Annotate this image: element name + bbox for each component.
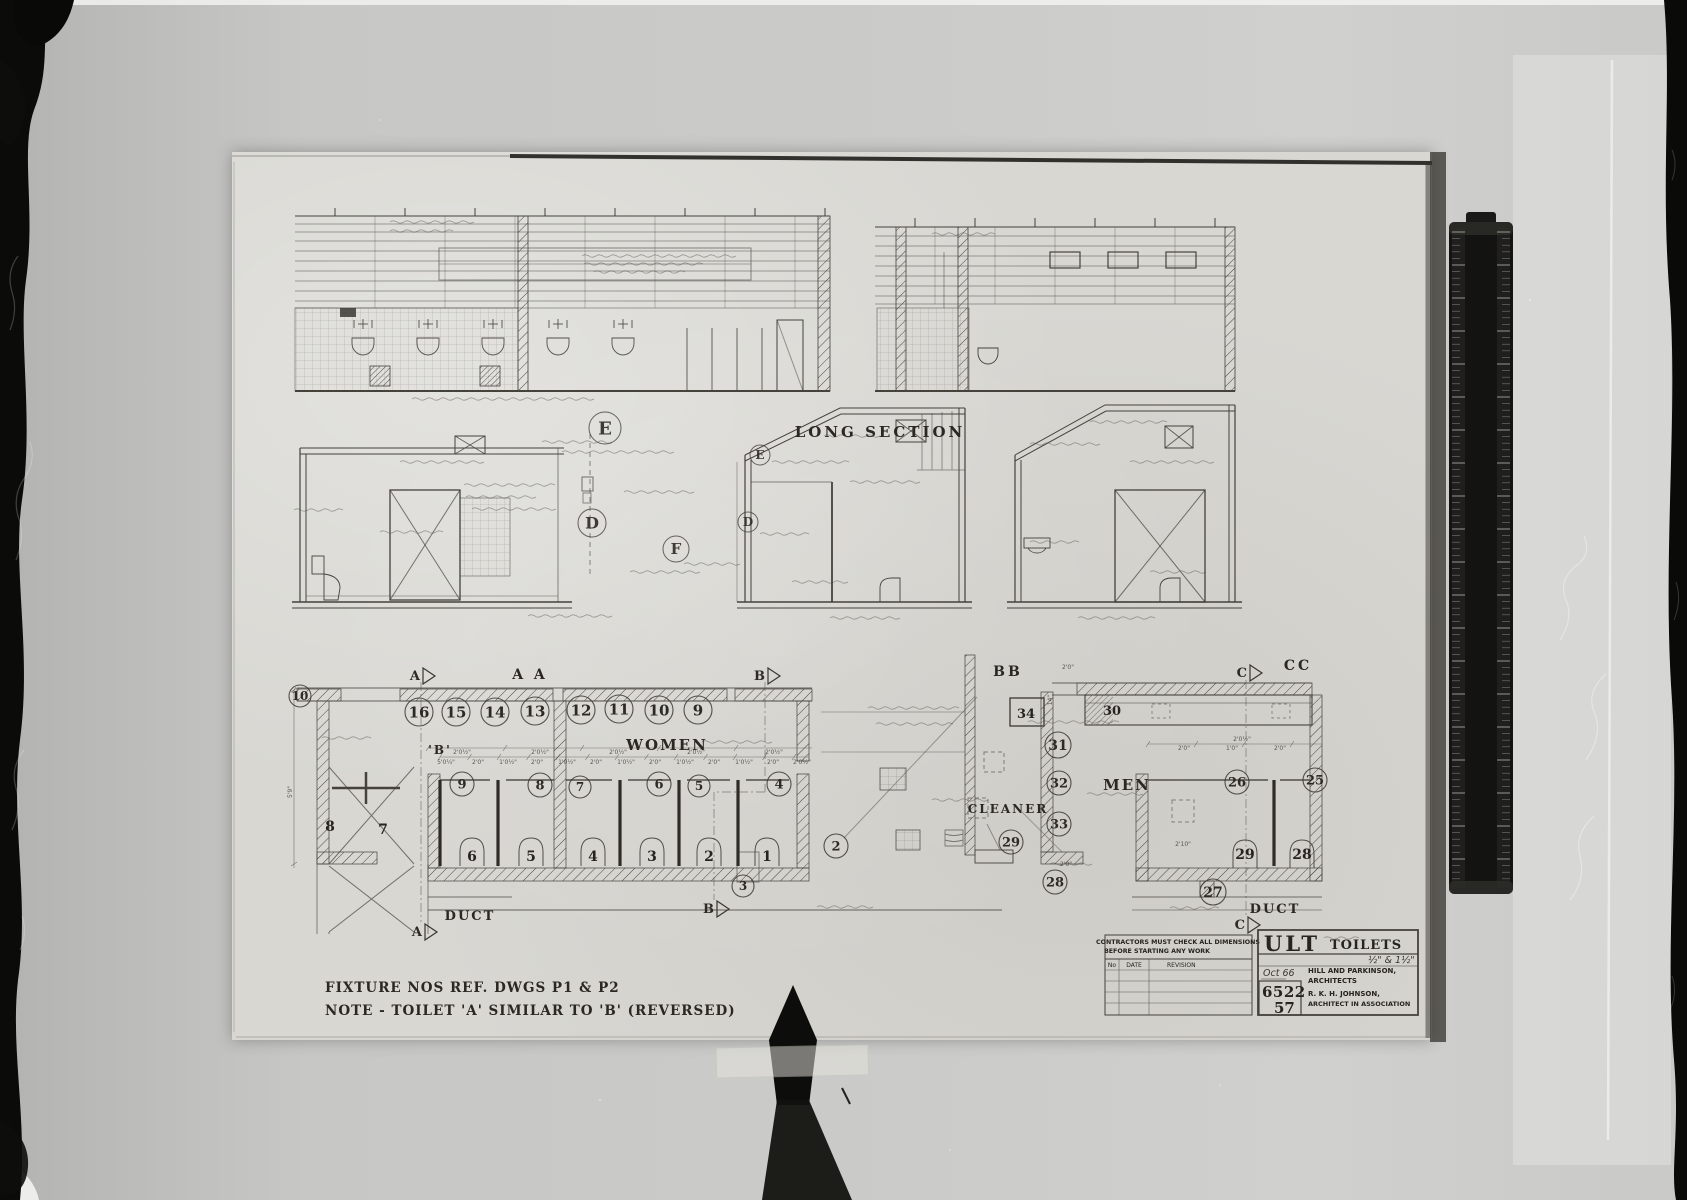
pen-tick-mark: [842, 1088, 850, 1104]
fixture-circle: 31: [1045, 732, 1071, 758]
stall-number: 4: [588, 849, 598, 865]
fixture-circle: 14: [481, 698, 509, 726]
dimension-label: 2'0": [1178, 745, 1190, 752]
fixture-circle: 5: [688, 775, 710, 797]
fixture-circle: 8: [528, 773, 552, 797]
svg-text:D: D: [585, 514, 599, 533]
sheet-edge-gap-shadow: [1430, 152, 1446, 1042]
cleaner-label: CLEANER: [968, 802, 1049, 816]
handwriting-scratches-left: [10, 256, 32, 950]
handwritten-note: [868, 707, 959, 709]
toilet-b-label: 'B': [428, 743, 452, 757]
svg-text:D: D: [743, 515, 753, 529]
detail-marker: E: [589, 412, 621, 444]
rev-revision-header: REVISION: [1167, 962, 1196, 969]
handwritten-note: [850, 481, 920, 483]
handwritten-note: [830, 617, 900, 619]
svg-text:16: 16: [409, 703, 430, 721]
handwritten-note: [792, 581, 848, 583]
rev-date-header: DATE: [1126, 962, 1142, 969]
firm-line3: R. K. H. JOHNSON,: [1308, 990, 1380, 998]
fixture-circle: 10: [289, 685, 311, 707]
stall-number: 2: [704, 849, 714, 865]
fixture-circle: 32: [1047, 771, 1071, 795]
duct-right-label: DUCT: [1250, 902, 1301, 917]
note-line2: NOTE - TOILET 'A' SIMILAR TO 'B' (REVERS…: [325, 1003, 736, 1019]
handwritten-note: [684, 563, 740, 565]
film-blob-topleft: [14, 0, 74, 45]
handwritten-note: [542, 441, 612, 443]
svg-text:C: C: [1237, 666, 1247, 681]
project-code: ULT: [1264, 931, 1320, 956]
ruler-graduations: [1452, 232, 1510, 879]
section-marker: A: [411, 924, 437, 940]
handwritten-note: [876, 723, 953, 725]
handwritten-note: [1090, 421, 1167, 423]
fixture-circle: 16: [405, 698, 433, 726]
handwritten-note: [772, 461, 849, 463]
handwritten-note: [412, 398, 594, 400]
handwritten-note: [464, 484, 555, 486]
stall-number: 1: [762, 849, 772, 865]
fixture-circle: 9: [450, 772, 474, 796]
svg-text:14: 14: [485, 703, 506, 721]
dimension-label: 2'0½": [453, 749, 471, 756]
women-label: WOMEN: [625, 736, 708, 754]
fixture-circle: 29: [999, 830, 1023, 854]
svg-text:15: 15: [446, 703, 467, 721]
photograph-of-drawing: { "sheet": { "captions": { "long_section…: [0, 0, 1687, 1200]
stall-number: 8: [325, 819, 335, 835]
dimension-label: 2'0": [1062, 664, 1074, 671]
title-block: CONTRACTORS MUST CHECK ALL DIMENSIONS BE…: [1096, 930, 1418, 1017]
fixture-circle: 2: [824, 834, 848, 858]
date-note: Oct 66: [1263, 968, 1295, 979]
section-aa-caption: A A: [511, 667, 548, 683]
handwritten-note: [390, 221, 474, 223]
dimension-label: 2'0": [1274, 745, 1286, 752]
box-number: 30: [1103, 704, 1121, 719]
svg-text:B: B: [754, 669, 765, 684]
dimension-label: 1'0½": [676, 759, 694, 766]
dimension-label: 1'0½": [558, 759, 576, 766]
scale-note: ½" & 1½": [1368, 955, 1415, 966]
print-corner-bottomleft: [0, 1160, 40, 1200]
svg-text:33: 33: [1050, 818, 1068, 833]
firm-line2: ARCHITECTS: [1308, 977, 1357, 985]
arrow-pointer-shadow: [762, 1100, 852, 1200]
svg-text:5: 5: [695, 779, 703, 793]
fixture-circle: 28: [1043, 870, 1067, 894]
detail-marker: D: [738, 512, 758, 532]
dimension-label: 14": [1047, 695, 1054, 706]
svg-text:C: C: [1235, 918, 1245, 933]
dimension-label: 2'10": [1175, 841, 1191, 848]
film-edge-right: [1664, 0, 1687, 1200]
fixture-circle: 4: [767, 772, 791, 796]
dimension-label: 2'0": [649, 759, 661, 766]
dimension-label: 1'0½": [735, 759, 753, 766]
fixture-circle: 3: [732, 875, 754, 897]
handwritten-note: [630, 571, 700, 573]
handwritten-note: [400, 461, 484, 463]
men-label: MEN: [1103, 776, 1151, 794]
basin-elevation: [547, 319, 569, 355]
svg-text:29: 29: [1002, 836, 1020, 851]
svg-text:31: 31: [1048, 738, 1067, 754]
handwritten-note: [1078, 617, 1155, 619]
svg-text:32: 32: [1050, 777, 1068, 792]
fixture-circle: 7: [569, 776, 591, 798]
section-bb-caption: BB: [993, 664, 1023, 680]
handwriting-scratches-right-edge: [1670, 150, 1679, 1010]
firm-line4: ARCHITECT IN ASSOCIATION: [1308, 1000, 1410, 1008]
dimension-label: 2'0½": [531, 749, 549, 756]
handwritten-note: [817, 906, 873, 908]
dimension-label: 2'0": [531, 759, 543, 766]
handwritten-note: [528, 615, 612, 617]
dimension-label: 2'0": [590, 759, 602, 766]
handwritten-note: [1030, 541, 1079, 543]
film-blob-left-upper: [0, 60, 25, 145]
svg-text:E: E: [598, 418, 612, 439]
dimension-label: 1'0½": [499, 759, 517, 766]
section-cc-caption: CC: [1284, 658, 1312, 674]
svg-text:12: 12: [571, 701, 592, 719]
duct-left-label: DUCT: [445, 909, 496, 924]
svg-text:2: 2: [831, 840, 840, 855]
svg-text:28: 28: [1046, 876, 1064, 891]
section-marker: C: [1235, 917, 1260, 933]
handwritten-note: [1150, 571, 1206, 573]
print-corner-topleft: [0, 0, 47, 47]
project-name: TOILETS: [1330, 938, 1402, 953]
dimension-label: 2'0½": [1233, 736, 1251, 743]
drawing-sheet: 1615141312111091098765423313233292625282…: [232, 152, 1432, 1040]
handwritten-note: [702, 741, 772, 743]
firm-line1: HILL AND PARKINSON,: [1308, 967, 1396, 975]
detail-marker: F: [663, 536, 689, 562]
svg-text:A: A: [411, 925, 423, 940]
dimension-label: 2'0": [767, 759, 779, 766]
handwriting-scratches-right: [1560, 536, 1606, 900]
warning-line2: BEFORE STARTING ANY WORK: [1104, 948, 1211, 955]
svg-text:7: 7: [576, 780, 584, 794]
svg-text:27: 27: [1203, 885, 1222, 901]
note-line1: FIXTURE NOS REF. DWGS P1 & P2: [325, 980, 620, 996]
stall-number: 28: [1292, 847, 1311, 863]
svg-text:4: 4: [774, 778, 783, 793]
svg-text:10: 10: [649, 701, 670, 719]
handwritten-note: [618, 451, 674, 453]
dimension-label: 5'0¼": [437, 759, 455, 766]
right-margin-strip: [1513, 55, 1671, 1165]
svg-text:3: 3: [739, 879, 747, 893]
svg-text:9: 9: [457, 778, 466, 793]
svg-text:F: F: [671, 540, 682, 558]
dimension-label: 1'0½": [617, 759, 635, 766]
section-marker: A: [409, 668, 435, 684]
fixture-circle: 6: [647, 772, 671, 796]
svg-text:13: 13: [525, 702, 546, 720]
svg-text:8: 8: [535, 779, 544, 794]
stall-number: 7: [378, 822, 388, 838]
handwritten-note: [294, 509, 343, 511]
stall-number: 29: [1235, 847, 1254, 863]
dimension-label: 2'0": [472, 759, 484, 766]
sheet-svg: 1615141312111091098765423313233292625282…: [232, 152, 1432, 1040]
fixture-circle: 33: [1047, 812, 1071, 836]
handwritten-note: [624, 491, 694, 493]
svg-text:E: E: [755, 448, 764, 462]
handwritten-note: [1170, 907, 1219, 909]
section-marker: B: [754, 668, 780, 684]
section-marker: C: [1237, 665, 1262, 681]
vertical-dim: [291, 688, 297, 868]
handwritten-note: [322, 737, 371, 739]
print-border-top: [0, 0, 1687, 5]
handwritten-note: [1130, 461, 1214, 463]
dimension-label: 2'0": [708, 759, 720, 766]
stall-number: 6: [467, 849, 477, 865]
film-edge-left: [0, 0, 48, 1200]
print-crease: [1608, 60, 1612, 1140]
dimension-label: 2'0½": [793, 759, 811, 766]
film-blob-left-lower: [0, 1120, 28, 1194]
floor-plan: [297, 655, 1322, 934]
detail-marker: D: [578, 509, 606, 537]
tape-strip: [716, 1045, 869, 1078]
dimension-label: 2'0½": [765, 749, 783, 756]
svg-text:9: 9: [693, 701, 703, 719]
handwritten-note: [1030, 443, 1100, 445]
warning-line1: CONTRACTORS MUST CHECK ALL DIMENSIONS: [1096, 939, 1260, 946]
rev-no-header: No: [1108, 962, 1116, 969]
detail-marker: E: [750, 445, 770, 465]
long-section-left-elevation: [295, 208, 830, 391]
fixture-circle: 15: [442, 698, 470, 726]
long-section-caption: LONG SECTION: [795, 423, 966, 441]
svg-text:B: B: [703, 902, 714, 917]
svg-text:25: 25: [1306, 774, 1324, 789]
svg-text:A: A: [409, 669, 421, 684]
box-number: 34: [1017, 707, 1035, 722]
scale-ruler: [1449, 212, 1513, 894]
section-marker: B: [703, 901, 729, 917]
svg-text:6: 6: [654, 778, 663, 793]
stall-number: 5: [526, 849, 536, 865]
fixture-circle: 26: [1225, 770, 1249, 794]
cross-section-1: [292, 434, 593, 608]
cross-section-3: [1007, 405, 1242, 608]
sheet-number: 57: [1274, 999, 1295, 1017]
long-section-right-elevation: [875, 218, 1235, 391]
handwritten-note: [932, 799, 988, 801]
basin-elevation: [612, 319, 634, 355]
dimension-label: 5'9": [287, 786, 294, 798]
dimension-label: 1'0": [1226, 745, 1238, 752]
svg-text:26: 26: [1228, 776, 1246, 791]
svg-text:11: 11: [609, 700, 630, 718]
handwritten-note: [760, 533, 809, 535]
stall-number: 3: [647, 849, 657, 865]
handwritten-note: [582, 255, 736, 257]
